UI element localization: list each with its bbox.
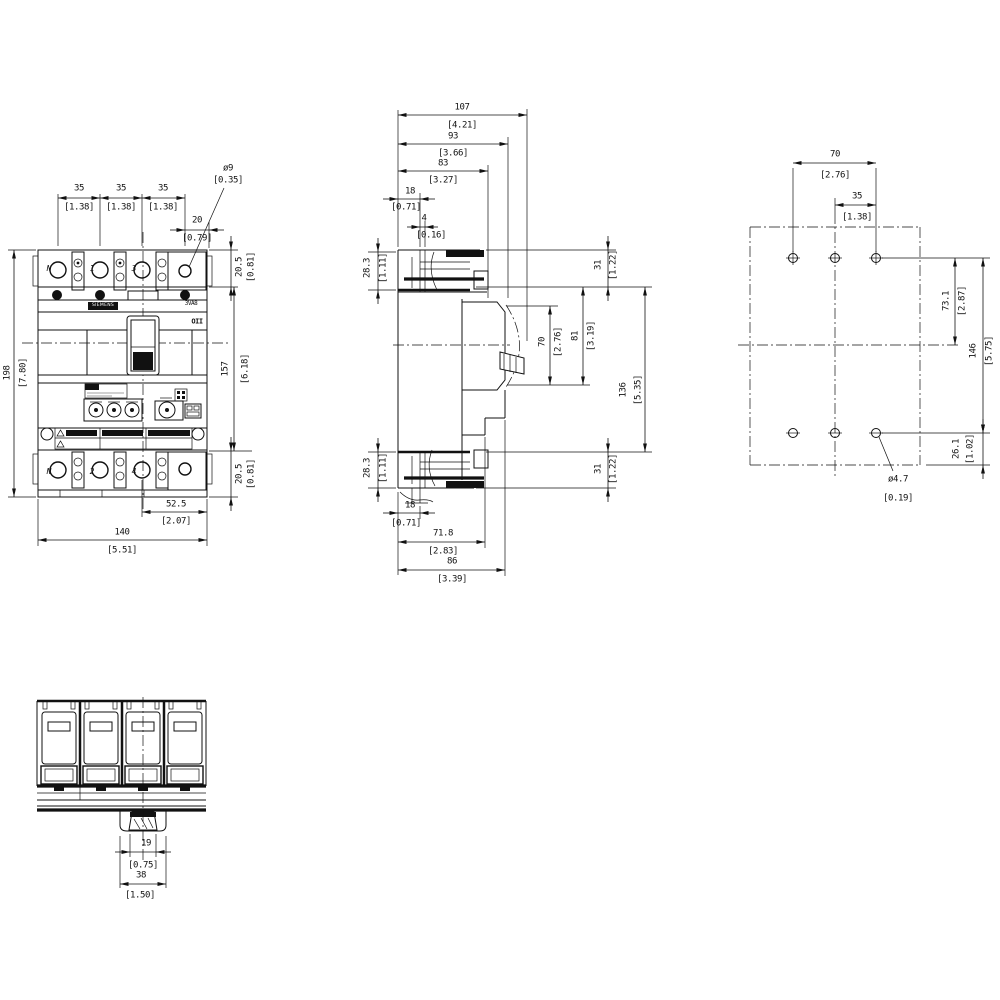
dim-front-bottom-terminal-mm: 20.5 (236, 464, 245, 484)
product-label: 3VA8 (185, 301, 197, 307)
dim-drill-146-inch: [5.75] (986, 336, 995, 366)
dim-side-18-bottom-mm: 18 (405, 502, 415, 511)
dim-drill-146-mm: 146 (970, 343, 979, 358)
warning-triangle-icon (57, 430, 64, 436)
dim-front-hole-dia-inch: [0.35] (213, 177, 243, 186)
dim-front-top-terminal-inch: [0.81] (248, 252, 257, 282)
terminal-label-3: 3 (132, 265, 137, 273)
dim-side-93-mm: 93 (448, 133, 458, 142)
handle-escutcheon (462, 302, 505, 390)
dim-drill-731-mm: 73.1 (943, 291, 952, 311)
dim-side-70-inch: [2.76] (555, 327, 564, 357)
terminal-label-4: 4 (132, 468, 137, 476)
dim-front-pitch1-mm: 35 (74, 185, 84, 194)
dim-side-83-mm: 83 (438, 160, 448, 169)
dim-front-pitch3-mm: 35 (158, 185, 168, 194)
dim-drill-70-inch: [2.76] (820, 172, 850, 181)
dim-drill-hole-dia-inch: [0.19] (883, 495, 913, 504)
switch-position-marking: OII (191, 319, 202, 326)
dim-front-hole-offset-mm: 20 (192, 217, 202, 226)
dim-side-18-bottom-inch: [0.71] (391, 520, 421, 529)
dim-front-pitch3-inch: [1.38] (148, 204, 178, 213)
dim-side-lug-bottom-inch: [1.11] (380, 453, 389, 483)
handle-swing-arc (506, 305, 520, 387)
front-view (8, 188, 252, 546)
dim-front-hole-dia-mm: ø9 (223, 165, 233, 174)
side-toggle-handle (500, 352, 524, 374)
dim-side-depth-mm: 107 (454, 104, 469, 113)
dim-side-31-bottom-mm: 31 (595, 464, 604, 474)
rating-plate (84, 384, 201, 421)
dim-front-right-width-inch: [2.07] (161, 518, 191, 527)
dim-front-bottom-terminal-inch: [0.81] (248, 459, 257, 489)
dim-front-top-terminal-mm: 20.5 (236, 257, 245, 277)
dim-side-86-inch: [3.39] (437, 576, 467, 585)
dim-side-31-bottom-inch: [1.22] (610, 454, 619, 484)
dim-front-right-width-mm: 52.5 (166, 501, 186, 510)
terminal-hole-n-bottom (50, 462, 66, 478)
bottom-view (37, 697, 206, 888)
drilling-plan (738, 163, 990, 479)
drawing-linework (0, 0, 1000, 1000)
dim-side-718-mm: 71.8 (433, 530, 453, 539)
dim-front-body-height-inch: [6.18] (242, 354, 251, 384)
front-top-terminals (50, 252, 206, 290)
dim-side-depth-inch: [4.21] (447, 122, 477, 131)
dim-side-718-inch: [2.83] (428, 548, 458, 557)
dim-drill-261-mm: 26.1 (953, 439, 962, 459)
dim-side-31-top-inch: [1.22] (610, 250, 619, 280)
dim-bottom-38-inch: [1.50] (125, 892, 155, 901)
dim-bottom-19-mm: 19 (141, 840, 151, 849)
dim-side-136-mm: 136 (620, 382, 629, 397)
dimension-drawing-canvas: N 1 3 N 2 4 SIEMENS 3VA8 OII 35 [1.38] 3… (0, 0, 1000, 1000)
dim-side-18-top-mm: 18 (405, 188, 415, 197)
terminal-label-2: 2 (90, 468, 95, 476)
dim-drill-hole-dia-mm: ø4.7 (888, 476, 908, 485)
dim-side-81-inch: [3.19] (588, 321, 597, 351)
terminal-label-n-bottom: N (47, 468, 52, 476)
dim-side-18-top-inch: [0.71] (391, 204, 421, 213)
terminal-label-n-top: N (47, 265, 52, 273)
dim-side-4-inch: [0.16] (416, 232, 446, 241)
dim-drill-70-mm: 70 (830, 151, 840, 160)
toggle-handle (127, 316, 159, 375)
dim-side-70-mm: 70 (539, 337, 548, 347)
dim-front-pitch1-inch: [1.38] (64, 204, 94, 213)
dim-side-136-inch: [5.35] (635, 375, 644, 405)
dim-front-height-mm: 198 (4, 365, 13, 380)
dim-front-width-mm: 140 (114, 529, 129, 538)
warning-strip (41, 428, 204, 449)
dim-front-hole-offset-inch: [0.79] (182, 235, 212, 244)
dim-side-81-mm: 81 (572, 331, 581, 341)
dim-bottom-38-mm: 38 (136, 872, 146, 881)
dim-front-pitch2-mm: 35 (116, 185, 126, 194)
dim-side-86-mm: 86 (447, 558, 457, 567)
dim-front-body-height-mm: 157 (222, 361, 231, 376)
dim-side-lug-top-inch: [1.11] (380, 253, 389, 283)
mounting-holes (786, 251, 883, 438)
dim-side-lug-bottom-mm: 28.3 (364, 458, 373, 478)
terminal-label-1: 1 (90, 265, 95, 273)
dim-side-31-top-mm: 31 (595, 260, 604, 270)
dim-drill-731-inch: [2.87] (959, 286, 968, 316)
dim-bottom-19-inch: [0.75] (128, 862, 158, 871)
dim-front-pitch2-inch: [1.38] (106, 204, 136, 213)
dim-drill-35-inch: [1.38] (842, 214, 872, 223)
warning-triangle-icon (57, 441, 64, 447)
dim-drill-261-inch: [1.02] (967, 434, 976, 464)
brand-label: SIEMENS (92, 304, 114, 309)
dim-drill-35-mm: 35 (852, 193, 862, 202)
dim-front-width-inch: [5.51] (107, 547, 137, 556)
dim-side-lug-top-mm: 28.3 (364, 258, 373, 278)
dim-side-83-inch: [3.27] (428, 177, 458, 186)
terminal-hole-n-top (50, 262, 66, 278)
dim-side-4-mm: 4 (421, 215, 426, 224)
dim-side-93-inch: [3.66] (438, 150, 468, 159)
mounting-hole-bottom-right (179, 463, 191, 475)
dim-front-height-inch: [7.80] (20, 358, 29, 388)
drill-dimensions (793, 163, 990, 479)
